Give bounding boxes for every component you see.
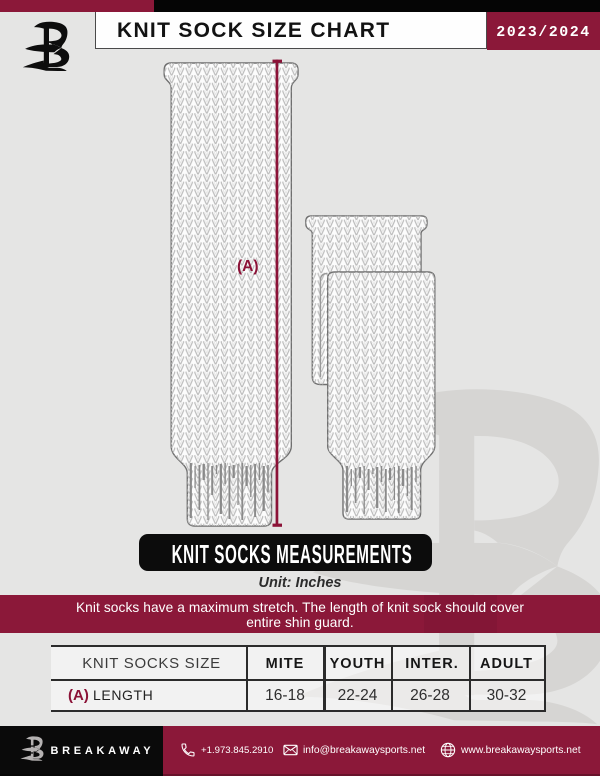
svg-text:(A): (A) bbox=[237, 258, 259, 275]
